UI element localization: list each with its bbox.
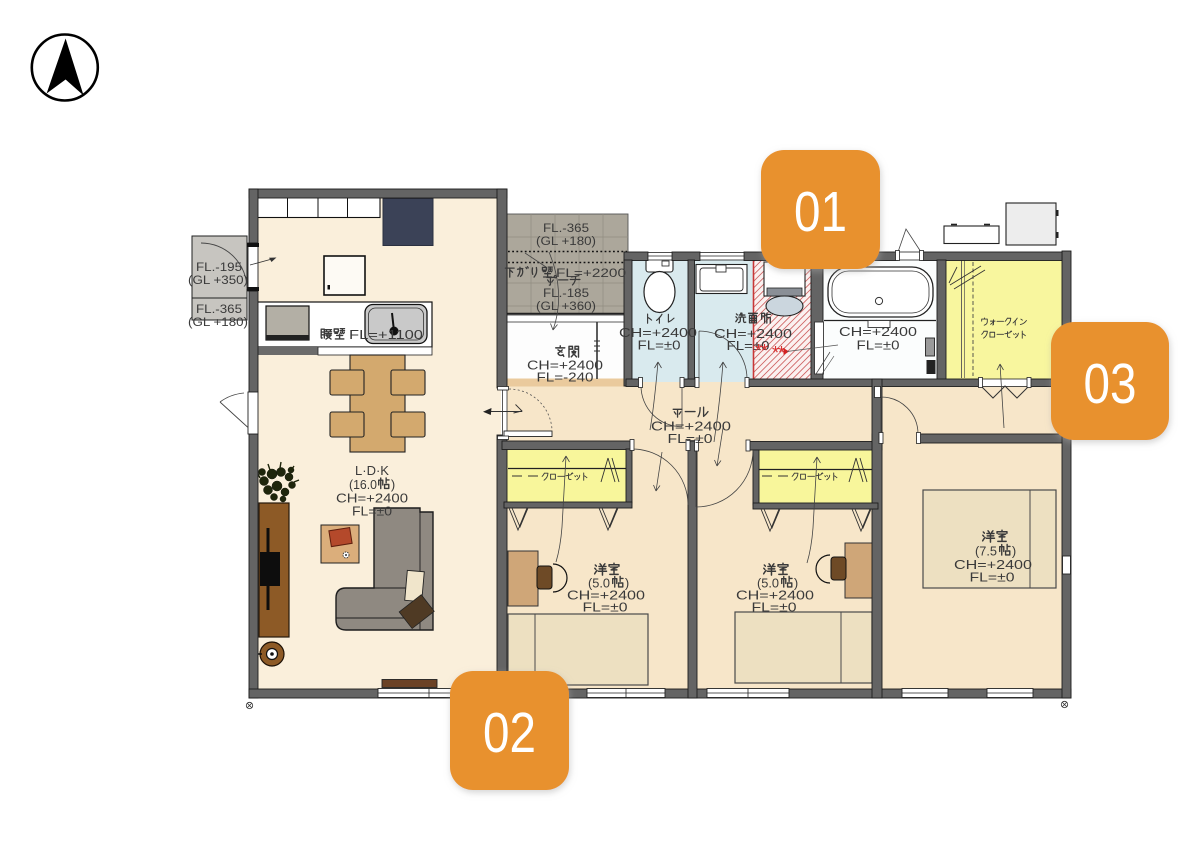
svg-text:FL=±0: FL=±0 xyxy=(583,600,628,615)
svg-text:FL=-240: FL=-240 xyxy=(537,370,594,385)
svg-text:FL=±0: FL=±0 xyxy=(752,600,797,615)
svg-text:FL.-185: FL.-185 xyxy=(543,288,589,300)
svg-text:01: 01 xyxy=(794,180,847,244)
svg-text:(GL +360): (GL +360) xyxy=(536,301,596,313)
svg-text:(GL +180): (GL +180) xyxy=(536,236,596,248)
svg-text:02: 02 xyxy=(483,701,536,765)
svg-text:FL=±0: FL=±0 xyxy=(970,570,1015,585)
svg-text:L·D·K: L·D·K xyxy=(355,463,389,478)
svg-text:FL=+1100: FL=+1100 xyxy=(349,328,423,342)
svg-text:03: 03 xyxy=(1084,352,1137,416)
svg-text:FL=±0: FL=±0 xyxy=(638,338,681,353)
svg-text:FL=±0: FL=±0 xyxy=(857,338,900,353)
svg-text:FL=+2200: FL=+2200 xyxy=(556,268,626,280)
svg-text:FL.-195: FL.-195 xyxy=(196,262,242,274)
svg-text:FL.-365: FL.-365 xyxy=(196,304,242,316)
svg-text:FL=±0: FL=±0 xyxy=(352,504,392,519)
svg-text:**: ** xyxy=(772,343,785,363)
svg-text:FL=±0: FL=±0 xyxy=(668,431,713,446)
svg-text:**: ** xyxy=(755,341,768,361)
svg-text:FL.-365: FL.-365 xyxy=(543,223,589,235)
svg-text:(GL +180): (GL +180) xyxy=(188,317,248,329)
svg-text:(GL +350): (GL +350) xyxy=(188,275,248,287)
